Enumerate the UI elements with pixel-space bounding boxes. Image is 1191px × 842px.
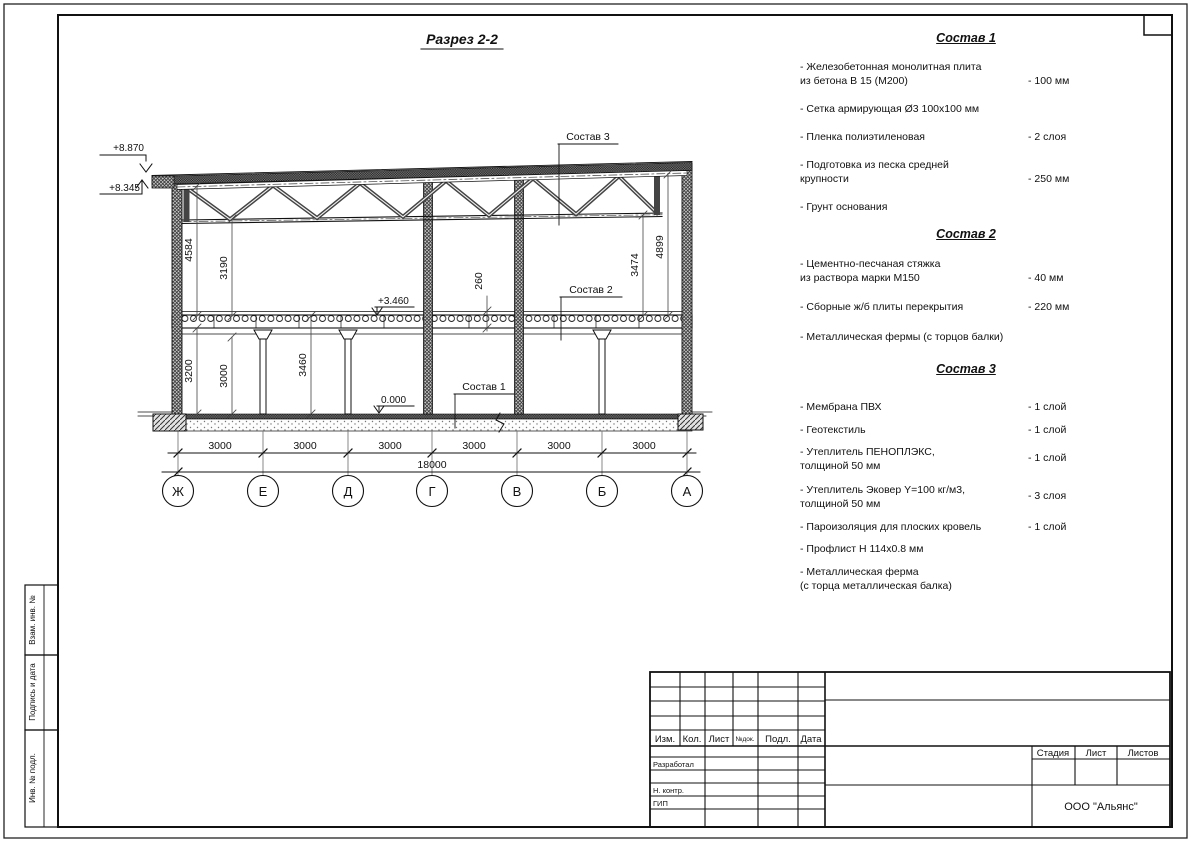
dim-3000-clear: 3000 bbox=[218, 333, 236, 418]
axis-label: Б bbox=[598, 484, 607, 499]
section-title-text: Разрез 2-2 bbox=[426, 31, 498, 47]
dim-label: 3000 bbox=[208, 440, 232, 452]
wall-right bbox=[682, 163, 692, 414]
stamp-sheet: Лист bbox=[1086, 748, 1107, 759]
dim-label: 3000 bbox=[632, 440, 656, 452]
spec-item-text: - Железобетонная монолитная плита из бет… bbox=[800, 61, 1035, 88]
spec-item-value: - 1 слой bbox=[1028, 401, 1118, 415]
bottom-dimensions: 3000 3000 3000 3000 3000 3000 18000 bbox=[162, 432, 700, 476]
spec-item-text: - Сборные ж/б плиты перекрытия bbox=[800, 301, 1035, 315]
elevation-label: +8.345 bbox=[109, 183, 140, 194]
elevation-label: +8.870 bbox=[113, 143, 144, 154]
stamp-col-izm: Изм. bbox=[655, 734, 675, 745]
axis-bubble: Д bbox=[333, 476, 364, 507]
dim-label: 3474 bbox=[629, 253, 641, 277]
spec-item-value: - 1 слой bbox=[1028, 424, 1118, 438]
side-strip-label-inv: Инв. № подл. bbox=[28, 753, 37, 803]
dim-label: 3000 bbox=[462, 440, 486, 452]
side-strip-label-vzam: Взам. инв. № bbox=[28, 595, 37, 645]
stamp-col-podp: Подл. bbox=[765, 734, 791, 745]
wall-left bbox=[172, 176, 182, 414]
callout-label: Состав 1 bbox=[462, 381, 506, 393]
spec-item-text: - Грунт основания bbox=[800, 201, 1035, 215]
spec-item-value: - 1 слой bbox=[1028, 452, 1118, 466]
callout-sostav2: Состав 2 bbox=[560, 284, 622, 340]
spec-item-value: - 1 слой bbox=[1028, 521, 1118, 535]
axis-label: В bbox=[513, 484, 522, 499]
section-title: Разрез 2-2 bbox=[421, 31, 503, 49]
axis-label: Е bbox=[259, 484, 268, 499]
spec-item-text: - Утеплитель ПЕНОПЛЭКС, толщиной 50 мм bbox=[800, 446, 1035, 473]
dim-total-label: 18000 bbox=[417, 459, 446, 471]
elevation-ground: 0.000 bbox=[374, 395, 414, 413]
axis-label: А bbox=[683, 484, 692, 499]
elevation-floor2: +3.460 bbox=[372, 296, 414, 315]
axis-bubbles: Ж Е Д Г В Б А bbox=[163, 476, 703, 507]
title-block: Изм. Кол. Лист №док. Подл. Дата Разработ… bbox=[650, 672, 1170, 827]
stamp-company: ООО "Альянс" bbox=[1064, 801, 1138, 813]
callout-label: Состав 2 bbox=[569, 284, 613, 296]
spec-item-value: - 220 мм bbox=[1028, 301, 1118, 315]
truss-end-post-right bbox=[654, 174, 660, 215]
spec-heading-3: Состав 3 bbox=[896, 362, 1036, 376]
spec-item-text: - Подготовка из песка средней крупности bbox=[800, 159, 1035, 186]
stamp-sheets: Листов bbox=[1128, 748, 1159, 759]
stamp-col-ndok: №док. bbox=[735, 736, 754, 743]
spec-item-text: - Мембрана ПВХ bbox=[800, 401, 1035, 415]
dim-label: 3190 bbox=[218, 256, 230, 280]
dim-label: 3000 bbox=[547, 440, 571, 452]
dim-label: 4899 bbox=[654, 235, 666, 259]
spec-item-text: - Сетка армирующая Ø3 100х100 мм bbox=[800, 103, 1035, 117]
spec-item-text: - Профлист Н 114х0.8 мм bbox=[800, 543, 1035, 557]
spec-item-text: - Металлическая ферма (с торца металличе… bbox=[800, 566, 1035, 593]
axis-bubble: В bbox=[502, 476, 533, 507]
elevation-label: +3.460 bbox=[378, 296, 409, 307]
spec-item-value: - 250 мм bbox=[1028, 173, 1118, 187]
axis-label: Ж bbox=[172, 484, 184, 499]
dim-label: 4584 bbox=[183, 238, 195, 262]
spec-item-value: - 2 слоя bbox=[1028, 131, 1118, 145]
spec-item-value: - 40 мм bbox=[1028, 272, 1118, 286]
spec-heading-2: Состав 2 bbox=[896, 227, 1036, 241]
dim-label: 3460 bbox=[297, 353, 309, 377]
spec-item-text: - Металлическая фермы (с торцов балки) bbox=[800, 331, 1035, 345]
section-drawing: +8.870 +8.345 +3.460 0.000 bbox=[100, 31, 712, 507]
dim-label: 260 bbox=[473, 272, 485, 290]
corner-box bbox=[1144, 15, 1172, 35]
elevation-roof-high: +8.870 bbox=[100, 143, 152, 172]
dim-label: 3000 bbox=[293, 440, 317, 452]
elevation-label: 0.000 bbox=[381, 395, 406, 406]
dim-label: 3000 bbox=[218, 364, 230, 388]
stamp-row-gip: ГИП bbox=[653, 799, 668, 808]
spec-heading-1: Состав 1 bbox=[896, 31, 1036, 45]
axis-bubble: Ж bbox=[163, 476, 194, 507]
spec-item-text: - Пароизоляция для плоских кровель bbox=[800, 521, 1035, 535]
side-strip-label-podpis: Подпись и дата bbox=[28, 663, 37, 721]
axis-label: Г bbox=[428, 484, 435, 499]
stamp-stage: Стадия bbox=[1037, 748, 1069, 759]
truss-end-post-left bbox=[184, 187, 190, 222]
stamp-row-razrabotal: Разработал bbox=[653, 760, 694, 769]
spec-item-text: - Пленка полиэтиленовая bbox=[800, 131, 1035, 145]
stamp-col-data: Дата bbox=[800, 734, 822, 745]
axis-bubble: Е bbox=[248, 476, 279, 507]
spec-item-text: - Утеплитель Эковер Y=100 кг/м3, толщино… bbox=[800, 484, 1035, 511]
stamp-col-list: Лист bbox=[709, 734, 730, 745]
spec-item-value: - 3 слоя bbox=[1028, 490, 1118, 504]
callout-label: Состав 3 bbox=[566, 131, 610, 143]
elevation-roof-eave: +8.345 bbox=[100, 180, 148, 194]
main-columns bbox=[424, 179, 524, 414]
spec-item-text: - Цементно-песчаная стяжка из раствора м… bbox=[800, 258, 1035, 285]
ground-slab bbox=[138, 412, 712, 432]
stamp-col-kol: Кол. bbox=[683, 734, 702, 745]
stamp-row-nkontr: Н. контр. bbox=[653, 786, 684, 795]
axis-bubble: Б bbox=[587, 476, 618, 507]
axis-label: Д bbox=[344, 484, 353, 499]
spec-item-value: - 100 мм bbox=[1028, 75, 1118, 89]
drawing-sheet: +8.870 +8.345 +3.460 0.000 bbox=[0, 0, 1191, 842]
eave-block bbox=[152, 176, 174, 188]
dim-3200: 3200 bbox=[183, 324, 201, 418]
side-strip: Взам. инв. № Подпись и дата Инв. № подл. bbox=[25, 585, 58, 827]
dim-3190: 3190 bbox=[218, 215, 236, 320]
sheet-linework: +8.870 +8.345 +3.460 0.000 bbox=[0, 0, 1191, 842]
dim-3474: 3474 bbox=[629, 211, 647, 320]
spec-item-text: - Геотекстиль bbox=[800, 424, 1035, 438]
axis-bubble: А bbox=[672, 476, 703, 507]
dim-label: 3000 bbox=[378, 440, 402, 452]
axis-bubble: Г bbox=[417, 476, 448, 507]
dim-label: 3200 bbox=[183, 359, 195, 383]
